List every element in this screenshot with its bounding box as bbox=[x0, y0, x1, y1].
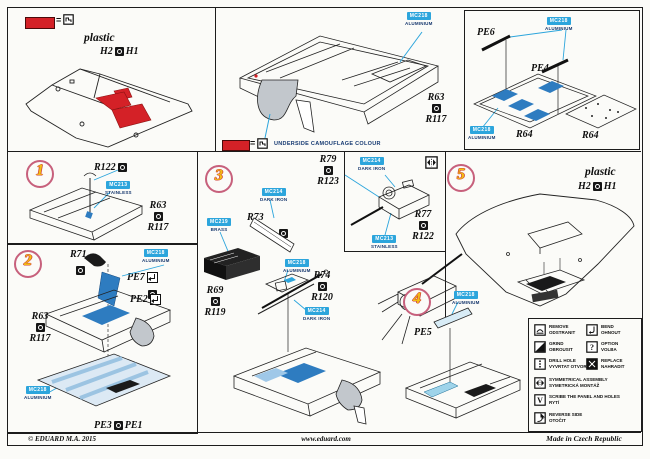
svg-text:?: ? bbox=[590, 343, 594, 352]
paint-badge-dark-iron: MC214 DARK IRON bbox=[260, 188, 287, 202]
paint-badge-aluminium: MC218 ALUMINIUM bbox=[452, 291, 480, 305]
legend-cz: OHNOUT bbox=[601, 330, 621, 336]
paint-code: MC218 bbox=[470, 126, 494, 134]
step-number-3: 3 bbox=[205, 165, 233, 193]
legend-item-bend: BENDOHNOUT bbox=[586, 324, 621, 336]
red-colour-swatch bbox=[222, 140, 250, 151]
legend-en: REPLACE bbox=[601, 358, 625, 364]
paint-code: MC218 bbox=[285, 259, 309, 267]
part-label-r63: R63 bbox=[428, 92, 445, 103]
legend-cz: NAHRADIT bbox=[601, 364, 625, 370]
legend-cz: VYVRTAT OTVOR bbox=[549, 364, 587, 370]
colour-key-icon bbox=[257, 138, 268, 149]
drill-hole-icon bbox=[534, 358, 546, 370]
equals-sign: = bbox=[250, 138, 255, 148]
paint-name: BRASS bbox=[211, 227, 228, 232]
paint-name: DARK IRON bbox=[303, 316, 330, 321]
reverse-side-icon bbox=[534, 412, 546, 424]
paint-name: ALUMINIUM bbox=[283, 268, 311, 273]
paint-name: ALUMINIUM bbox=[468, 135, 496, 140]
paint-badge-aluminium: MC218 ALUMINIUM bbox=[283, 259, 311, 273]
paint-code: MC218 bbox=[144, 249, 168, 257]
paint-badge-aluminium: MC218 ALUMINIUM bbox=[405, 12, 433, 26]
legend-item-drill-hole: DRILL HOLEVYVRTAT OTVOR bbox=[534, 358, 587, 370]
paint-code: MC218 bbox=[26, 386, 50, 394]
paint-code: MC214 bbox=[262, 188, 286, 196]
part-label-r64: R64 bbox=[582, 130, 599, 141]
paint-name: ALUMINIUM bbox=[24, 395, 52, 400]
legend-en: SCRIBE THE PANEL AND HOLES bbox=[549, 394, 620, 400]
equals-sign: = bbox=[56, 15, 61, 25]
legend-cz: OBROUSIT bbox=[549, 347, 573, 353]
paint-code: MC214 bbox=[305, 307, 329, 315]
part-label-r123: R123 bbox=[317, 176, 339, 187]
part-label-r64: R64 bbox=[516, 129, 533, 140]
paint-badge-stainless: MC213 STAINLESS bbox=[105, 181, 132, 195]
paint-badge-aluminium: MC218 ALUMINIUM bbox=[142, 249, 170, 263]
legend-item-reverse-side: REVERSE SIDEOTOČIT bbox=[534, 412, 582, 424]
legend-cz: SYMETRICKÁ MONTÁŽ bbox=[549, 383, 608, 389]
paint-code: MC214 bbox=[360, 157, 384, 165]
wing-upper-drawing bbox=[18, 58, 208, 150]
paint-name: DARK IRON bbox=[260, 197, 287, 202]
paint-name: ALUMINIUM bbox=[405, 21, 433, 26]
legend-item-symmetrical: SYMMETRICAL ASSEMBLYSYMETRICKÁ MONTÁŽ bbox=[534, 377, 608, 389]
option-icon: ? bbox=[586, 341, 598, 353]
scribe-icon: V bbox=[534, 394, 546, 406]
part-label-h1: H1 bbox=[126, 46, 139, 57]
paint-badge-aluminium: MC218 ALUMINIUM bbox=[468, 126, 496, 140]
legend-cz: ODSTRANIT bbox=[549, 330, 575, 336]
paint-name: STAINLESS bbox=[371, 244, 398, 249]
fuselage-drawing bbox=[222, 16, 460, 148]
instruction-sheet: = plastic H2 H1 MC218 ALUMINIUM bbox=[0, 0, 650, 459]
variant-parts-column: R79 R123 bbox=[313, 154, 343, 187]
legend-en: OPTION bbox=[601, 341, 618, 347]
paint-code: MC218 bbox=[407, 12, 431, 20]
colour-key-icon bbox=[63, 14, 74, 25]
legend-item-option: ? OPTIONVOLBA bbox=[586, 341, 618, 353]
plastic-label: plastic bbox=[84, 32, 115, 44]
variant-icon bbox=[324, 166, 333, 175]
step-number-2: 2 bbox=[14, 250, 42, 278]
paint-code: MC213 bbox=[372, 235, 396, 243]
paint-code: MC218 bbox=[547, 17, 571, 25]
red-colour-swatch bbox=[25, 17, 55, 29]
website-text: www.eduard.com bbox=[280, 435, 372, 443]
paint-badge-dark-iron: MC214 DARK IRON bbox=[358, 157, 385, 171]
legend-item-scribe: V SCRIBE THE PANEL AND HOLESRYTÍ bbox=[534, 394, 620, 406]
replace-icon bbox=[586, 358, 598, 370]
grind-icon bbox=[534, 341, 546, 353]
paint-name: ALUMINIUM bbox=[545, 26, 573, 31]
legend-item-grind: GRINDOBROUSIT bbox=[534, 341, 573, 353]
step-number-1: 1 bbox=[26, 160, 54, 188]
variant-parts-column: R63 R117 bbox=[416, 92, 456, 125]
part-label-r117: R117 bbox=[425, 114, 446, 125]
underside-colour-note: UNDERSIDE CAMOUFLAGE COLOUR bbox=[274, 141, 381, 147]
remove-icon bbox=[534, 324, 546, 336]
variant-icon bbox=[115, 47, 124, 56]
bend-icon bbox=[586, 324, 598, 336]
variant-icon bbox=[432, 104, 441, 113]
step-number-4: 4 bbox=[403, 288, 431, 316]
paint-name: STAINLESS bbox=[105, 190, 132, 195]
paint-name: DARK IRON bbox=[358, 166, 385, 171]
step-number-5: 5 bbox=[447, 164, 475, 192]
paint-code: MC218 bbox=[454, 291, 478, 299]
footer-divider bbox=[7, 432, 641, 433]
paint-code: MC213 bbox=[106, 181, 130, 189]
variant-icon bbox=[154, 212, 163, 221]
paint-badge-aluminium: MC218 ALUMINIUM bbox=[24, 386, 52, 400]
topleft-topmid-divider bbox=[215, 7, 216, 151]
symmetrical-assembly-icon bbox=[534, 377, 546, 389]
legend-cz: OTOČIT bbox=[549, 418, 582, 424]
paint-code: MC219 bbox=[207, 218, 231, 226]
paint-name: ALUMINIUM bbox=[142, 258, 170, 263]
legend-cz: VOLBA bbox=[601, 347, 618, 353]
plastic-label: plastic bbox=[585, 166, 616, 178]
floor-panels-drawing bbox=[466, 16, 636, 142]
legend-item-replace: REPLACENAHRADIT bbox=[586, 358, 625, 370]
part-label-h2: H2 bbox=[100, 46, 113, 57]
legend-cz: RYTÍ bbox=[549, 400, 620, 406]
legend-en: REVERSE SIDE bbox=[549, 412, 582, 418]
paint-badge-stainless: MC213 STAINLESS bbox=[371, 235, 398, 249]
legend-item-remove: REMOVEODSTRANIT bbox=[534, 324, 575, 336]
plastic-parts-row: H2 H1 bbox=[100, 46, 139, 57]
svg-text:V: V bbox=[537, 396, 543, 405]
paint-badge-brass: MC219 BRASS bbox=[207, 218, 231, 232]
part-label-r79: R79 bbox=[320, 154, 337, 165]
made-in-text: Made in Czech Republic bbox=[528, 434, 640, 443]
paint-badge-dark-iron: MC214 DARK IRON bbox=[303, 307, 330, 321]
legend-en: SYMMETRICAL ASSEMBLY bbox=[549, 377, 608, 383]
paint-name: ALUMINIUM bbox=[452, 300, 480, 305]
copyright-text: © EDUARD M.A. 2015 bbox=[28, 435, 96, 443]
paint-badge-aluminium: MC218 ALUMINIUM bbox=[545, 17, 573, 31]
